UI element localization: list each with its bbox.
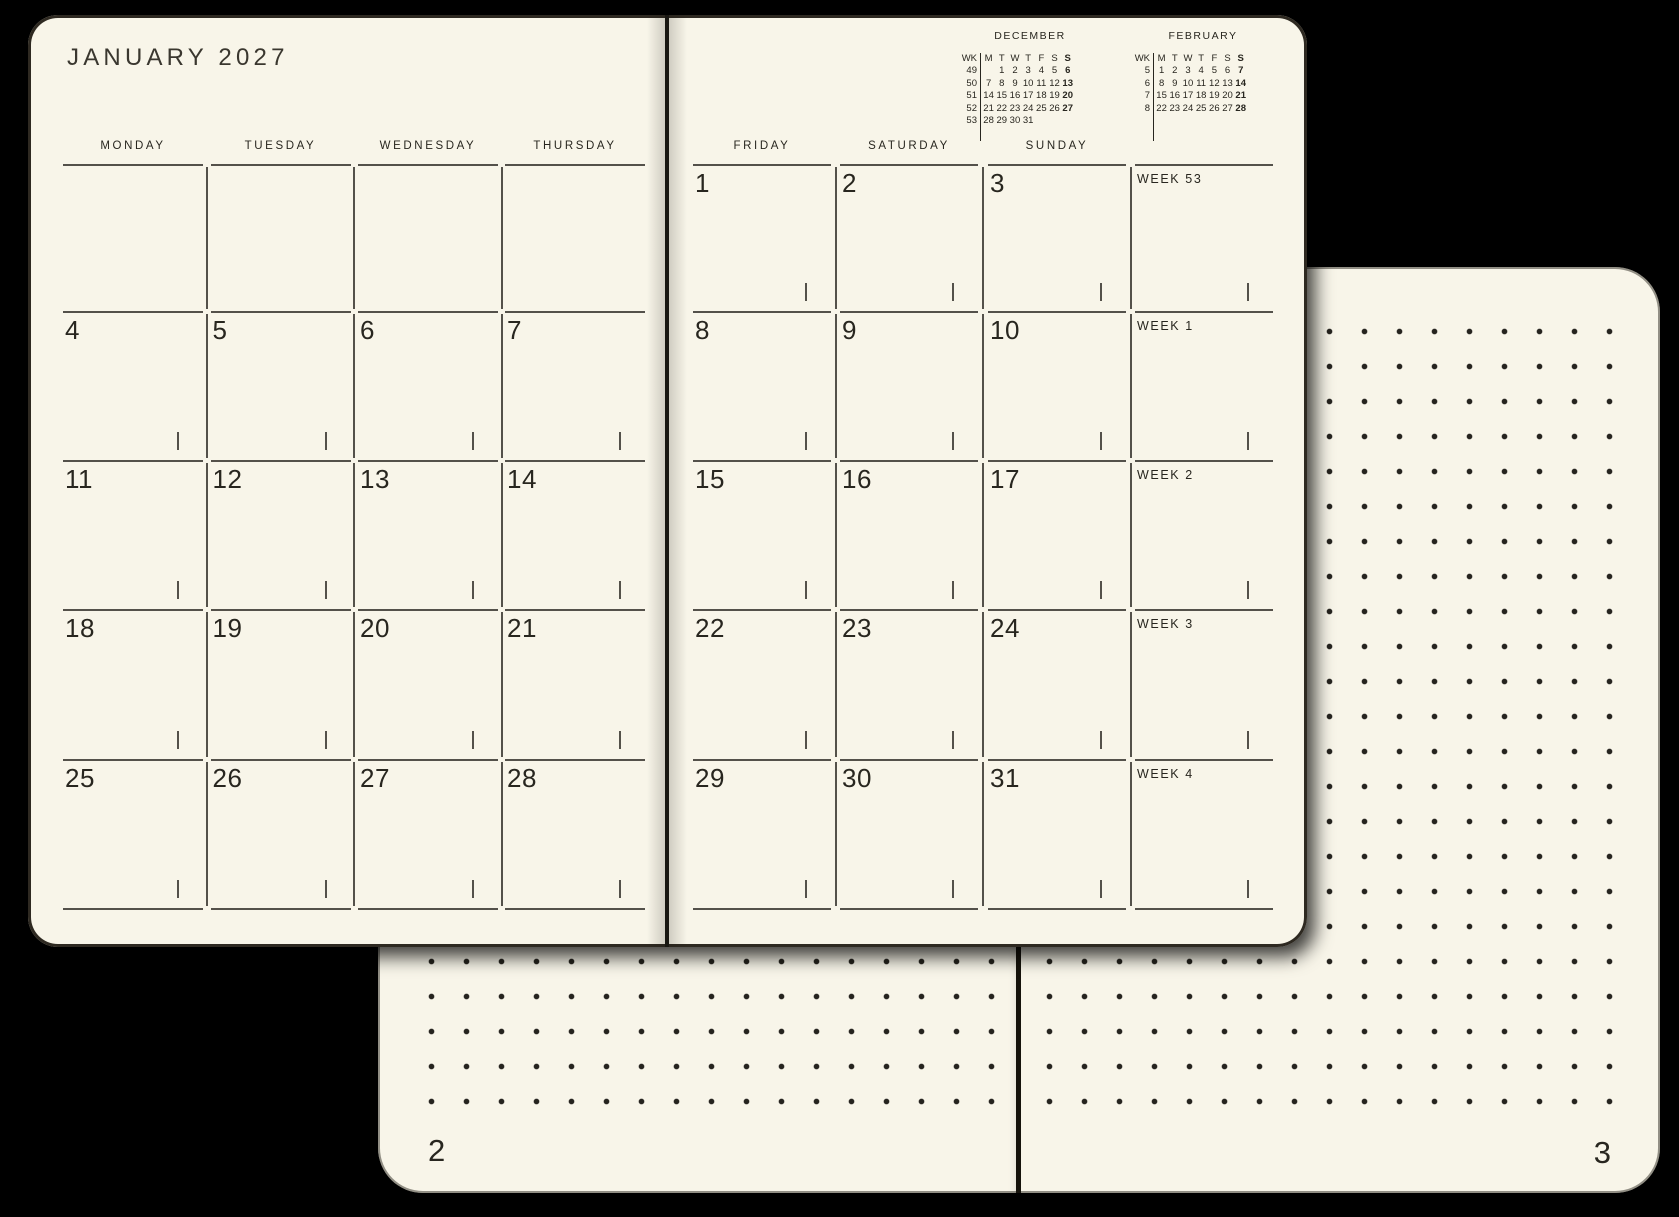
- mini-day-number: 19: [1208, 90, 1221, 102]
- mini-days-wrap: 1234567: [1153, 65, 1247, 77]
- week-label: WEEK 3: [1137, 618, 1194, 631]
- front-spread: JANUARY 2027 MONDAYTUESDAYWEDNESDAYTHURS…: [28, 15, 1307, 947]
- cell-tick: [952, 432, 954, 450]
- grid-line-h: [1135, 460, 1273, 462]
- day-number: 1: [695, 170, 710, 196]
- mini-days-wrap: MTWTFSS: [980, 53, 1074, 65]
- day-number: 30: [842, 765, 872, 791]
- mini-day-number: 13: [1061, 78, 1074, 90]
- mini-week-number: 53: [960, 115, 980, 127]
- grid-line-v: [982, 762, 984, 907]
- grid-line-v: [982, 167, 984, 309]
- mini-day-number: 6: [1221, 65, 1234, 77]
- mini-dow-label: W: [1181, 53, 1194, 65]
- mini-day-number: 7: [982, 78, 995, 90]
- cell-tick: [805, 880, 807, 898]
- mini-day-number: 13: [1221, 78, 1234, 90]
- mini-day-number: [982, 65, 995, 77]
- mini-day-number: 7: [1234, 65, 1247, 77]
- day-number: 10: [990, 317, 1020, 343]
- grid-line-h: [693, 908, 831, 910]
- mini-day-number: 6: [1061, 65, 1074, 77]
- calendar-right-page: DECEMBERWKMTWTFSS49123456507891011121351…: [28, 15, 1307, 947]
- mini-day-number: 12: [1208, 78, 1221, 90]
- grid-line-v: [1130, 314, 1132, 458]
- day-number: 9: [842, 317, 857, 343]
- grid-line-h: [988, 460, 1126, 462]
- grid-line-v: [835, 314, 837, 458]
- mini-day-number: 15: [995, 90, 1008, 102]
- mini-dow-label: W: [1008, 53, 1021, 65]
- day-header: SATURDAY: [840, 139, 978, 153]
- grid-line-v: [1130, 762, 1132, 907]
- mini-day-number: [1048, 115, 1061, 127]
- grid-line-v: [835, 463, 837, 607]
- mini-day-number: 26: [1048, 103, 1061, 115]
- mini-week-number: 5: [1133, 65, 1153, 77]
- mini-week-number: 6: [1133, 78, 1153, 90]
- mini-day-number: 8: [1155, 78, 1168, 90]
- day-number: 31: [990, 765, 1020, 791]
- grid-line-h: [840, 908, 978, 910]
- mini-days-wrap: 14151617181920: [980, 90, 1074, 102]
- mini-day-number: 29: [995, 115, 1008, 127]
- day-number: 3: [990, 170, 1005, 196]
- mini-day-number: 25: [1195, 103, 1208, 115]
- mini-line-extension: [1133, 115, 1247, 141]
- mini-day-number: 20: [1061, 90, 1074, 102]
- mini-day-number: 16: [1168, 90, 1181, 102]
- day-number: 23: [842, 615, 872, 641]
- mini-dow-label: T: [1168, 53, 1181, 65]
- mini-cal-week-row: 49123456: [960, 65, 1074, 77]
- mini-day-number: 16: [1008, 90, 1021, 102]
- mini-day-number: 23: [1008, 103, 1021, 115]
- cell-tick: [1247, 581, 1249, 599]
- mini-dow-label: S: [1048, 53, 1061, 65]
- mini-cal-title: FEBRUARY: [1155, 31, 1251, 42]
- cell-tick: [952, 283, 954, 301]
- grid-line-v: [982, 612, 984, 757]
- grid-line-h: [693, 311, 831, 313]
- cell-tick: [1247, 880, 1249, 898]
- mini-day-number: 17: [1181, 90, 1194, 102]
- mini-day-number: 12: [1048, 78, 1061, 90]
- grid-line-h: [988, 164, 1126, 166]
- mini-day-number: 17: [1022, 90, 1035, 102]
- mini-day-number: 4: [1195, 65, 1208, 77]
- mini-cal-header-row: WKMTWTFSS: [960, 53, 1074, 65]
- mini-day-number: 10: [1022, 78, 1035, 90]
- mini-wk-header: WK: [1133, 53, 1153, 65]
- mini-week-number: 51: [960, 90, 980, 102]
- mini-day-number: 3: [1022, 65, 1035, 77]
- mini-day-number: 4: [1035, 65, 1048, 77]
- mini-day-number: 24: [1022, 103, 1035, 115]
- cell-tick: [952, 731, 954, 749]
- mini-day-number: 28: [1234, 103, 1247, 115]
- week-label: WEEK 2: [1137, 469, 1194, 482]
- mini-cal-week-row: 5114151617181920: [960, 90, 1074, 102]
- grid-line-h: [1135, 311, 1273, 313]
- grid-line-h: [1135, 908, 1273, 910]
- cell-tick: [1100, 731, 1102, 749]
- mini-day-number: 14: [982, 90, 995, 102]
- cell-tick: [1247, 283, 1249, 301]
- mini-day-number: 9: [1008, 78, 1021, 90]
- mini-day-number: 31: [1022, 115, 1035, 127]
- planner-scene: 2 3 JANUARY 2027 MONDAYTUESDAYWEDNESDAYT…: [0, 0, 1679, 1217]
- mini-days-wrap: 891011121314: [1153, 78, 1247, 90]
- day-header: SUNDAY: [988, 139, 1126, 153]
- grid-line-h: [1135, 759, 1273, 761]
- cell-tick: [805, 581, 807, 599]
- cell-tick: [1247, 432, 1249, 450]
- grid-line-v: [835, 762, 837, 907]
- mini-cal-week-row: 5328293031: [960, 115, 1074, 127]
- cell-tick: [1100, 283, 1102, 301]
- mini-day-number: 30: [1008, 115, 1021, 127]
- page-number-right: 3: [1519, 1137, 1611, 1168]
- day-number: 15: [695, 466, 725, 492]
- mini-dow-label: T: [1022, 53, 1035, 65]
- mini-day-number: 28: [982, 115, 995, 127]
- grid-line-v: [982, 463, 984, 607]
- grid-line-h: [693, 460, 831, 462]
- mini-days-wrap: 15161718192021: [1153, 90, 1247, 102]
- grid-line-v: [1130, 463, 1132, 607]
- week-label: WEEK 53: [1137, 173, 1202, 186]
- mini-day-number: 26: [1208, 103, 1221, 115]
- mini-day-number: 11: [1195, 78, 1208, 90]
- mini-dow-label: T: [995, 53, 1008, 65]
- mini-day-number: 2: [1168, 65, 1181, 77]
- grid-line-v: [982, 314, 984, 458]
- cell-tick: [805, 283, 807, 301]
- cell-tick: [805, 432, 807, 450]
- grid-line-h: [840, 311, 978, 313]
- grid-line-h: [840, 609, 978, 611]
- mini-day-number: 22: [995, 103, 1008, 115]
- mini-wk-spacer: [1133, 115, 1153, 141]
- mini-day-number: 23: [1168, 103, 1181, 115]
- mini-cal-header-row: WKMTWTFSS: [1133, 53, 1247, 65]
- mini-day-number: 22: [1155, 103, 1168, 115]
- mini-wk-header: WK: [960, 53, 980, 65]
- mini-day-number: 11: [1035, 78, 1048, 90]
- mini-week-number: 52: [960, 103, 980, 115]
- mini-dow-label: F: [1208, 53, 1221, 65]
- day-number: 2: [842, 170, 857, 196]
- mini-cal-week-row: 51234567: [1133, 65, 1247, 77]
- cell-tick: [1100, 880, 1102, 898]
- day-number: 16: [842, 466, 872, 492]
- mini-dow-label: M: [982, 53, 995, 65]
- mini-day-number: 20: [1221, 90, 1234, 102]
- week-label: WEEK 1: [1137, 320, 1194, 333]
- mini-cal-week-row: 5078910111213: [960, 78, 1074, 90]
- cell-tick: [1100, 581, 1102, 599]
- grid-line-h: [988, 908, 1126, 910]
- week-label: WEEK 4: [1137, 768, 1194, 781]
- day-number: 17: [990, 466, 1020, 492]
- mini-days-wrap: 123456: [980, 65, 1074, 77]
- day-number: 29: [695, 765, 725, 791]
- grid-line-h: [840, 164, 978, 166]
- mini-days-wrap: 78910111213: [980, 78, 1074, 90]
- mini-day-number: 14: [1234, 78, 1247, 90]
- mini-day-number: 1: [1155, 65, 1168, 77]
- mini-dow-label: S: [1221, 53, 1234, 65]
- mini-days-wrap: 21222324252627: [980, 103, 1074, 115]
- mini-day-number: 8: [995, 78, 1008, 90]
- day-number: 22: [695, 615, 725, 641]
- mini-day-number: 18: [1035, 90, 1048, 102]
- grid-line-h: [988, 759, 1126, 761]
- mini-dow-label: S: [1234, 53, 1247, 65]
- mini-day-number: 21: [982, 103, 995, 115]
- day-number: 8: [695, 317, 710, 343]
- mini-week-number: 49: [960, 65, 980, 77]
- grid-line-h: [693, 759, 831, 761]
- mini-day-number: 18: [1195, 90, 1208, 102]
- mini-day-number: 2: [1008, 65, 1021, 77]
- mini-days-wrap: [1153, 115, 1155, 141]
- grid-line-h: [1135, 164, 1273, 166]
- mini-week-number: 50: [960, 78, 980, 90]
- mini-day-number: [1061, 115, 1074, 127]
- mini-day-number: 3: [1181, 65, 1194, 77]
- cell-tick: [952, 581, 954, 599]
- mini-dow-label: F: [1035, 53, 1048, 65]
- mini-dow-label: T: [1195, 53, 1208, 65]
- grid-line-h: [988, 609, 1126, 611]
- mini-cal-grid: WKMTWTFSS4912345650789101112135114151617…: [960, 53, 1074, 141]
- grid-line-h: [988, 311, 1126, 313]
- mini-day-number: 21: [1234, 90, 1247, 102]
- grid-line-v: [835, 612, 837, 757]
- mini-cal-week-row: 822232425262728: [1133, 103, 1247, 115]
- mini-days-wrap: MTWTFSS: [1153, 53, 1247, 65]
- mini-day-number: 9: [1168, 78, 1181, 90]
- grid-line-h: [693, 609, 831, 611]
- mini-day-number: 24: [1181, 103, 1194, 115]
- mini-dow-label: S: [1061, 53, 1074, 65]
- cell-tick: [952, 880, 954, 898]
- mini-day-number: 5: [1048, 65, 1061, 77]
- mini-day-number: 25: [1035, 103, 1048, 115]
- day-number: 24: [990, 615, 1020, 641]
- mini-days-wrap: 28293031: [980, 115, 1074, 127]
- mini-cal-week-row: 5221222324252627: [960, 103, 1074, 115]
- mini-dow-label: M: [1155, 53, 1168, 65]
- mini-days-wrap: [980, 127, 982, 141]
- mini-days-wrap: 22232425262728: [1153, 103, 1247, 115]
- mini-week-number: 7: [1133, 90, 1153, 102]
- cell-tick: [1100, 432, 1102, 450]
- grid-line-v: [1130, 167, 1132, 309]
- cell-tick: [1247, 731, 1249, 749]
- mini-week-number: 8: [1133, 103, 1153, 115]
- day-header: FRIDAY: [693, 139, 831, 153]
- mini-day-number: 19: [1048, 90, 1061, 102]
- mini-day-number: 10: [1181, 78, 1194, 90]
- mini-day-number: 27: [1061, 103, 1074, 115]
- mini-day-number: 1: [995, 65, 1008, 77]
- grid-line-h: [840, 759, 978, 761]
- mini-cal-week-row: 715161718192021: [1133, 90, 1247, 102]
- mini-day-number: [1035, 115, 1048, 127]
- mini-day-number: 27: [1221, 103, 1234, 115]
- grid-line-h: [1135, 609, 1273, 611]
- page-number-left: 2: [428, 1135, 445, 1166]
- mini-day-number: 15: [1155, 90, 1168, 102]
- grid-line-h: [693, 164, 831, 166]
- grid-line-h: [840, 460, 978, 462]
- mini-day-number: 5: [1208, 65, 1221, 77]
- cell-tick: [805, 731, 807, 749]
- mini-cal-title: DECEMBER: [982, 31, 1078, 42]
- mini-cal-grid: WKMTWTFSS5123456768910111213147151617181…: [1133, 53, 1247, 141]
- grid-line-v: [835, 167, 837, 309]
- grid-line-v: [1130, 612, 1132, 757]
- mini-cal-week-row: 6891011121314: [1133, 78, 1247, 90]
